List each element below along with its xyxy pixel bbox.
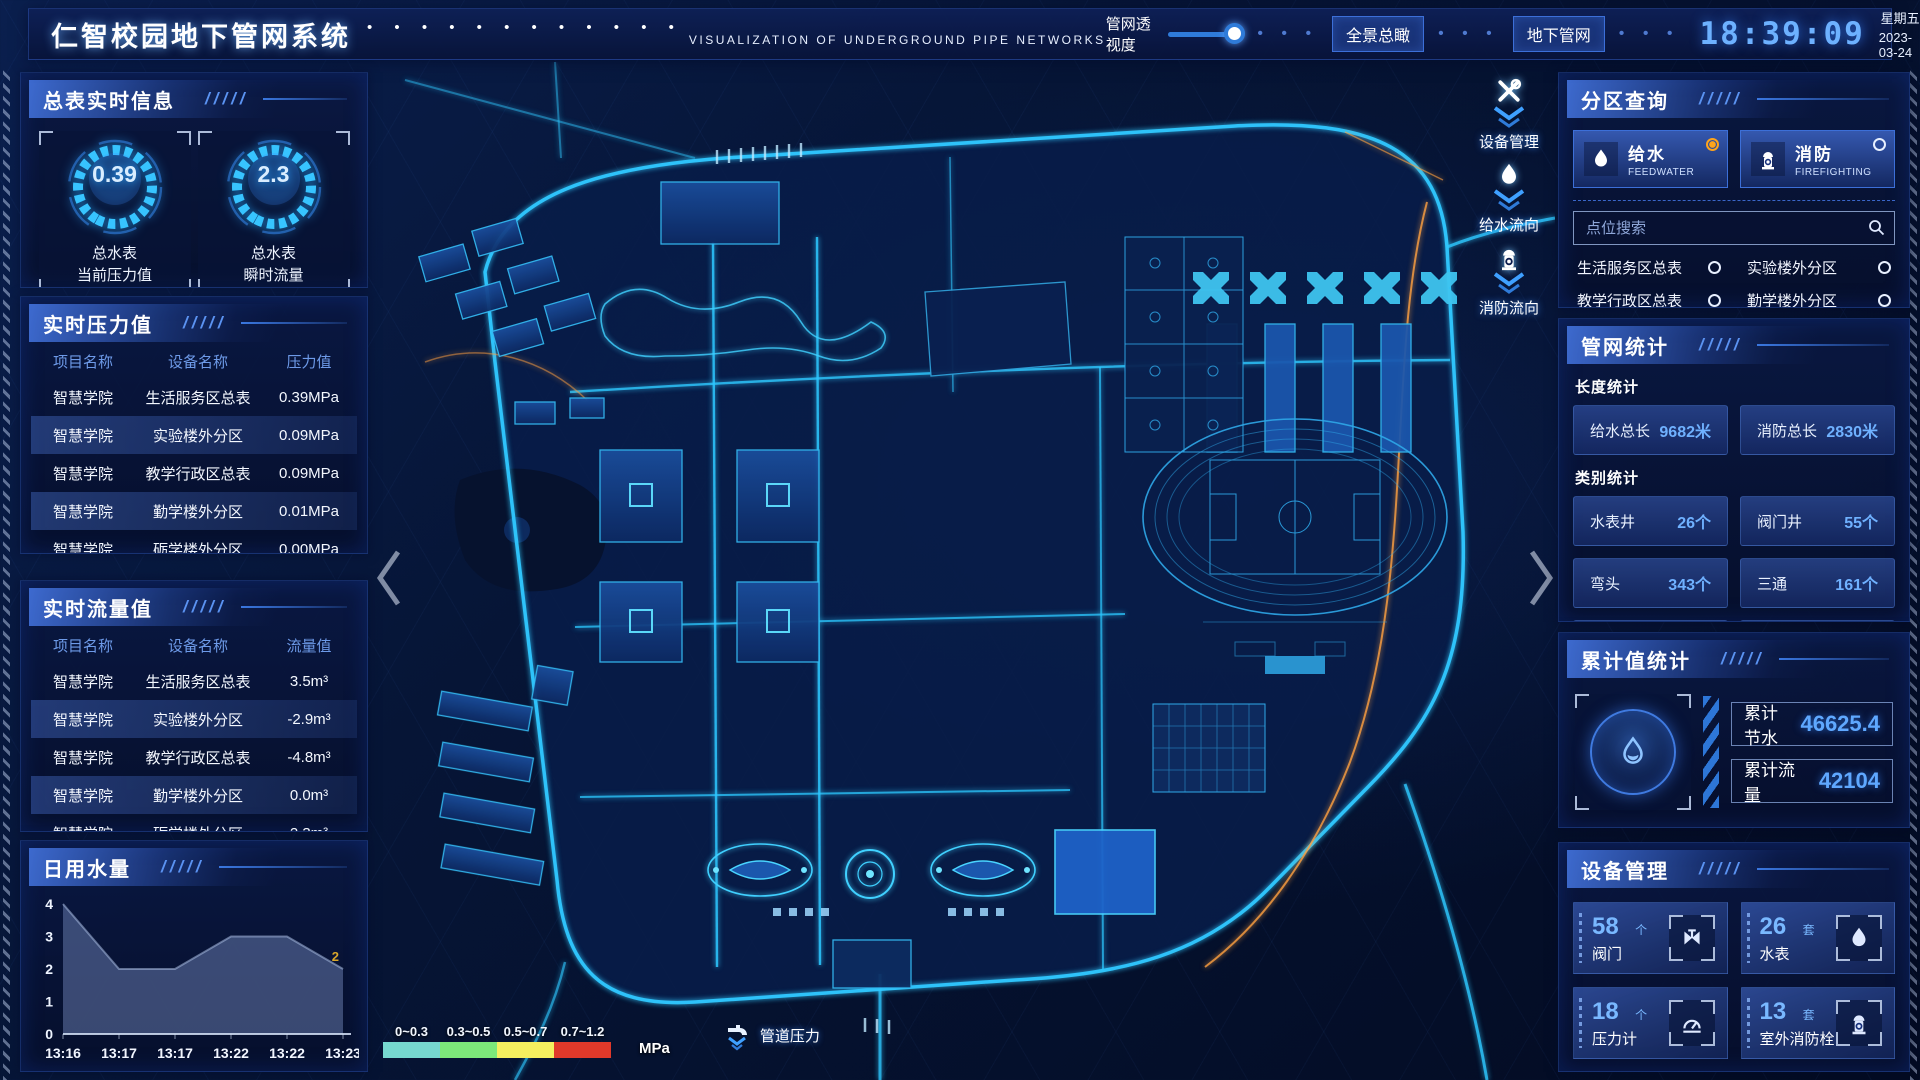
water-drop-icon (1836, 915, 1882, 961)
map-prev-chevron[interactable] (372, 546, 406, 610)
category-stats-label: 类别统计 (1575, 467, 1893, 488)
map-overlay-controls: 设备管理 给水流向 消防流向 (1462, 76, 1556, 327)
legend-range-label: 0.7~1.2 (561, 1024, 605, 1039)
section-header: 分区查询 ///// (1567, 80, 1901, 118)
col-header: 设备名称 (135, 351, 261, 372)
table-row: 智慧学院勤学楼外分区0.0m³ (31, 776, 357, 814)
overlay-label: 给水流向 (1479, 214, 1539, 235)
section-title: 管网统计 (1581, 331, 1669, 360)
stripe-decoration (1703, 696, 1719, 808)
x-tick-label: 13:22 (213, 1045, 249, 1061)
section-header: 总表实时信息 ///// (29, 80, 359, 118)
legend-range-label: 0.3~0.5 (447, 1024, 491, 1039)
zone-item[interactable]: 生活服务区总表 (1577, 257, 1721, 278)
slash-decoration: ///// (1699, 89, 1743, 109)
table-row: 智慧学院实验楼外分区0.09MPa (31, 416, 357, 454)
section-header: 实时压力值 ///// (29, 304, 359, 342)
tab-feedwater[interactable]: 给水 FEEDWATER (1573, 130, 1728, 188)
table-row: 智慧学院教学行政区总表0.09MPa (31, 454, 357, 492)
line-decoration (241, 606, 347, 608)
table-row: 智慧学院教学行政区总表-4.8m³ (31, 738, 357, 776)
line-decoration (1757, 344, 1889, 346)
water-drop-icon (1616, 735, 1650, 769)
water-drop-icon (1584, 142, 1618, 176)
underground-pipes-button[interactable]: 地下管网 (1513, 16, 1605, 52)
realtime-pressure-panel: 实时压力值 ///// 项目名称 设备名称 压力值 智慧学院生活服务区总表0.3… (20, 296, 368, 554)
right-edge-decoration (1910, 70, 1917, 1080)
panorama-button[interactable]: 全景总瞰 (1332, 16, 1424, 52)
slash-decoration: ///// (1721, 649, 1765, 669)
campus-map[interactable] (365, 62, 1555, 1080)
legend-range: 0.7~1.2 (554, 1024, 611, 1058)
section-title: 实时流量值 (43, 593, 153, 622)
section-title: 累计值统计 (1581, 645, 1691, 674)
flow-gauge: 2.3 (224, 137, 324, 237)
radio-unselected[interactable] (1873, 138, 1886, 151)
radio-unselected[interactable] (1708, 294, 1721, 307)
x-tick-label: 13:17 (101, 1045, 137, 1061)
gauge-value: 2.3 (224, 161, 324, 188)
line-decoration (219, 866, 347, 868)
hydrant-icon (1495, 244, 1523, 272)
left-edge-decoration (3, 70, 10, 1080)
gauge-label-line2: 当前压力值 (77, 265, 152, 287)
y-tick-label: 4 (45, 896, 53, 912)
section-header: 累计值统计 ///// (1567, 640, 1901, 678)
legend-unit: MPa (639, 1040, 670, 1057)
meter-info-panel: 总表实时信息 ///// 0.39 总水表 当前压力值 (20, 72, 368, 288)
section-header: 实时流量值 ///// (29, 588, 359, 626)
stat-box: 给水总长 9682米 (1573, 405, 1728, 455)
clock: 18:39:09 (1699, 16, 1864, 52)
app-subtitle: VISUALIZATION OF UNDERGROUND PIPE NETWOR… (689, 33, 1106, 47)
col-header: 压力值 (261, 351, 357, 372)
stat-box: 消防总长 2830米 (1740, 405, 1895, 455)
chevron-stack-icon (1487, 106, 1531, 130)
faucet-icon (722, 1018, 752, 1052)
pressure-gauge: 0.39 (65, 137, 165, 237)
zone-item[interactable]: 勤学楼外分区 (1747, 290, 1891, 308)
tab-label: 给水 (1628, 140, 1694, 165)
chevron-stack-icon (1487, 272, 1531, 296)
x-tick-label: 13:17 (157, 1045, 193, 1061)
water-badge (1575, 694, 1691, 810)
length-stats-label: 长度统计 (1575, 376, 1893, 397)
y-tick-label: 2 (45, 961, 53, 977)
x-tick-label: 13:23 (325, 1045, 359, 1061)
line-decoration (1757, 868, 1889, 870)
date: 2023-03-24 (1879, 30, 1920, 60)
legend-range: 0~0.3 (383, 1024, 440, 1058)
search-input[interactable] (1573, 211, 1895, 245)
table-row: 智慧学院实验楼外分区-2.9m³ (31, 700, 357, 738)
area-series (63, 904, 343, 1034)
slash-decoration: ///// (1699, 335, 1743, 355)
y-tick-label: 0 (45, 1026, 53, 1042)
stat-box-cropped (1573, 620, 1728, 622)
legend-swatch (554, 1042, 611, 1058)
pressure-table: 项目名称 设备名称 压力值 智慧学院生活服务区总表0.39MPa 智慧学院实验楼… (21, 342, 367, 554)
dot-separator: • • • (1619, 25, 1680, 43)
legend-swatch (440, 1042, 497, 1058)
table-row: 智慧学院砺学楼外分区2.3m³ (31, 814, 357, 832)
slash-decoration: ///// (161, 857, 205, 877)
section-header: 日用水量 ///// (29, 848, 359, 886)
cumulative-stats-panel: 累计值统计 ///// 累计节水 46625.4 累计流量 42104 (1558, 632, 1910, 828)
last-point-label: 2 (332, 949, 339, 964)
gauge-label-line2: 瞬时流量 (243, 265, 303, 287)
device-manage-panel: 设备管理 ///// 58 个 阀门 26 套 水表 (1558, 842, 1910, 1072)
zone-item[interactable]: 实验楼外分区 (1747, 257, 1891, 278)
pressure-legend: 0~0.30.3~0.50.5~0.70.7~1.2 MPa 管道压力 (383, 1018, 820, 1058)
title-dots-decoration: • • • • • • • • • • • • (367, 19, 683, 36)
legend-range: 0.5~0.7 (497, 1024, 554, 1058)
search-icon (1868, 219, 1885, 236)
pipe-pressure-flag: 管道压力 (722, 1018, 820, 1052)
daily-water-panel: 日用水量 ///// 0123413:1613:1713:1713:2213:2… (20, 840, 368, 1072)
feedwater-flow-overlay-button[interactable]: 给水流向 (1479, 161, 1539, 235)
table-row: 智慧学院生活服务区总表0.39MPa (31, 378, 357, 416)
section-title: 设备管理 (1581, 855, 1669, 884)
col-header: 设备名称 (135, 635, 261, 656)
pipe-opacity-slider[interactable] (1168, 24, 1244, 44)
cumulative-row: 累计流量 42104 (1731, 759, 1893, 803)
tab-sublabel: FEEDWATER (1628, 167, 1694, 178)
legend-cells: 0~0.30.3~0.50.5~0.70.7~1.2 (383, 1024, 611, 1058)
legend-swatch (497, 1042, 554, 1058)
legend-range-label: 0.5~0.7 (504, 1024, 548, 1039)
pipe-opacity-label: 管网透视度 (1106, 13, 1154, 55)
app-title: 仁智校园地下管网系统 (51, 15, 351, 54)
slash-decoration: ///// (205, 89, 249, 109)
pipe-stats-panel: 管网统计 ///// 长度统计 给水总长 9682米 消防总长 2830米 类别… (1558, 318, 1910, 622)
table-row: 智慧学院勤学楼外分区0.01MPa (31, 492, 357, 530)
slash-decoration: ///// (183, 597, 227, 617)
map-next-chevron[interactable] (1524, 546, 1558, 610)
weekday: 星期五 (1881, 8, 1920, 27)
y-tick-label: 1 (45, 994, 53, 1010)
col-header: 项目名称 (31, 351, 135, 372)
stat-box: 水表井 26个 (1573, 496, 1728, 546)
hydrant-icon (1751, 142, 1785, 176)
device-manage-overlay-button[interactable]: 设备管理 (1479, 76, 1539, 152)
x-tick-label: 13:16 (45, 1045, 81, 1061)
tab-sublabel: FIREFIGHTING (1795, 167, 1872, 178)
gauge-value: 0.39 (65, 161, 165, 188)
tab-label: 消防 (1795, 140, 1872, 165)
daily-water-chart: 0123413:1613:1713:1713:2213:2213:232 (29, 890, 359, 1070)
slider-fill (1168, 32, 1228, 37)
legend-swatch (383, 1042, 440, 1058)
section-title: 日用水量 (43, 853, 131, 882)
table-row: 智慧学院生活服务区总表3.5m³ (31, 662, 357, 700)
gauge-card-pressure: 0.39 总水表 当前压力值 (39, 131, 191, 288)
table-header-row: 项目名称 设备名称 流量值 (31, 628, 357, 662)
device-card-hydrant[interactable]: 13 套 室外消防栓 (1741, 987, 1896, 1059)
tab-firefighting[interactable]: 消防 FIREFIGHTING (1740, 130, 1895, 188)
table-header-row: 项目名称 设备名称 压力值 (31, 344, 357, 378)
tools-icon (1494, 76, 1524, 106)
stat-box: 弯头 343个 (1573, 558, 1728, 608)
section-header: 设备管理 ///// (1567, 850, 1901, 888)
gauge-label-line1: 总水表 (77, 243, 152, 265)
chevron-stack-icon (1487, 189, 1531, 213)
cumulative-row: 累计节水 46625.4 (1731, 702, 1893, 746)
header-bar: 仁智校园地下管网系统 • • • • • • • • • • • • VISUA… (28, 8, 1892, 60)
overlay-label: 设备管理 (1479, 131, 1539, 152)
device-card-valve[interactable]: 58 个 阀门 (1573, 902, 1728, 974)
line-decoration (1757, 98, 1889, 100)
dashed-divider (1573, 200, 1895, 201)
radio-unselected[interactable] (1708, 261, 1721, 274)
section-title: 实时压力值 (43, 309, 153, 338)
dot-separator: • • • (1438, 25, 1499, 43)
line-decoration (263, 98, 347, 100)
slash-decoration: ///// (183, 313, 227, 333)
radio-selected[interactable] (1706, 138, 1719, 151)
x-tick-label: 13:22 (269, 1045, 305, 1061)
radio-unselected[interactable] (1878, 294, 1891, 307)
col-header: 项目名称 (31, 635, 135, 656)
section-title: 总表实时信息 (43, 85, 175, 114)
stat-box-cropped (1740, 620, 1895, 622)
legend-range-label: 0~0.3 (395, 1024, 428, 1039)
legend-range: 0.3~0.5 (440, 1024, 497, 1058)
water-drop-icon (1495, 161, 1523, 189)
valve-icon (1669, 915, 1715, 961)
stat-box: 阀门井 55个 (1740, 496, 1895, 546)
section-header: 管网统计 ///// (1567, 326, 1901, 364)
gauge-label-line1: 总水表 (243, 243, 303, 265)
line-decoration (1779, 658, 1889, 660)
gauge-card-flow: 2.3 总水表 瞬时流量 (198, 131, 350, 288)
radio-unselected[interactable] (1878, 261, 1891, 274)
line-decoration (241, 322, 347, 324)
dot-separator: • • • (1257, 25, 1318, 43)
zone-item[interactable]: 教学行政区总表 (1577, 290, 1721, 308)
realtime-flow-panel: 实时流量值 ///// 项目名称 设备名称 流量值 智慧学院生活服务区总表3.5… (20, 580, 368, 832)
point-search (1573, 211, 1895, 245)
flow-table: 项目名称 设备名称 流量值 智慧学院生活服务区总表3.5m³ 智慧学院实验楼外分… (21, 626, 367, 832)
slider-thumb[interactable] (1224, 23, 1245, 44)
fire-flow-overlay-button[interactable]: 消防流向 (1479, 244, 1539, 318)
slash-decoration: ///// (1699, 859, 1743, 879)
device-card-water-meter[interactable]: 26 套 水表 (1741, 902, 1896, 974)
section-title: 分区查询 (1581, 85, 1669, 114)
pipe-pressure-label: 管道压力 (760, 1025, 820, 1046)
zone-query-panel: 分区查询 ///// 给水 FEEDWATER 消防 FIREFI (1558, 72, 1910, 308)
overlay-label: 消防流向 (1479, 297, 1539, 318)
y-tick-label: 3 (45, 929, 53, 945)
hydrant-icon (1836, 1000, 1882, 1046)
pressure-gauge-icon (1669, 1000, 1715, 1046)
table-row: 智慧学院砺学楼外分区0.00MPa (31, 530, 357, 554)
device-card-pressure-gauge[interactable]: 18 个 压力计 (1573, 987, 1728, 1059)
stat-box: 三通 161个 (1740, 558, 1895, 608)
zone-list: 生活服务区总表 实验楼外分区 教学行政区总表 勤学楼外分区 砺学楼外分区 宿舍区… (1577, 257, 1891, 308)
col-header: 流量值 (261, 635, 357, 656)
